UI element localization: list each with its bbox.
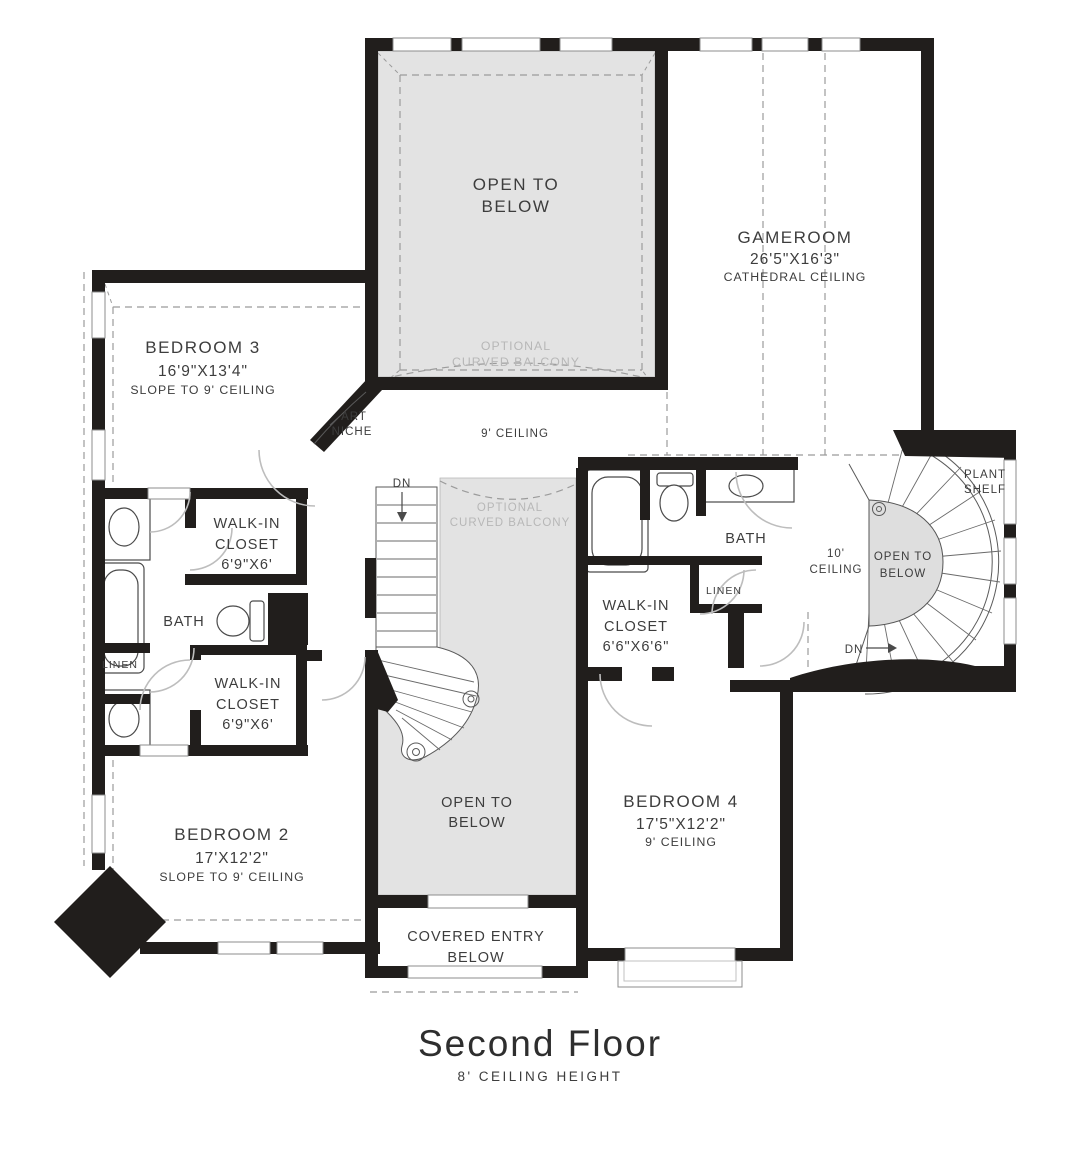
- ceiling-10-label: 10': [827, 548, 845, 560]
- floor-plan-page: OPEN TO BELOW OPTIONAL CURVED BALCONY GA…: [0, 0, 1080, 1152]
- wic-left-lower-label2: CLOSET: [216, 697, 280, 713]
- gameroom-name: GAMEROOM: [738, 228, 853, 247]
- optional-balcony-mid-label: OPTIONAL: [477, 502, 543, 514]
- open-below-top-label: OPEN TO: [473, 175, 559, 194]
- bedroom2-note: SLOPE TO 9' CEILING: [159, 870, 304, 884]
- plant-shelf-wall: [893, 430, 1016, 458]
- plant-shelf-label2: SHELF: [964, 484, 1006, 496]
- open-below-mid-label: OPEN TO: [441, 795, 513, 811]
- bedroom3-name: BEDROOM 3: [145, 338, 261, 357]
- ceiling-9-label: 9' CEILING: [481, 428, 549, 440]
- wic-right-label: WALK-IN: [603, 598, 670, 614]
- page-title: Second Floor: [418, 1023, 662, 1064]
- ceiling-10-label2: CEILING: [809, 564, 862, 576]
- covered-entry-label2: BELOW: [447, 950, 504, 966]
- door-wic-right: [600, 674, 652, 726]
- bay-corner-wall: [54, 866, 166, 978]
- bedroom3-dims: 16'9"X13'4": [158, 363, 248, 380]
- bedroom4-name: BEDROOM 4: [623, 792, 739, 811]
- linen-left-label: LINEN: [102, 659, 138, 671]
- toilet-left-tank: [250, 601, 264, 641]
- wic-left-lower-dims: 6'9"X6': [222, 717, 274, 733]
- sink-right: [729, 475, 763, 497]
- open-below-spiral-label2: BELOW: [880, 568, 927, 580]
- door-bedroom4: [760, 622, 804, 666]
- dn-spiral-label: DN: [845, 644, 864, 656]
- bedroom4-dims: 17'5"X12'2": [636, 816, 726, 833]
- wic-left-upper-dims: 6'9"X6': [221, 557, 273, 573]
- toilet-right-bowl: [660, 485, 688, 521]
- wic-left-lower-label: WALK-IN: [215, 676, 282, 692]
- optional-balcony-mid-label2: CURVED BALCONY: [450, 517, 571, 529]
- wic-left-upper-label: WALK-IN: [214, 516, 281, 532]
- bedroom2-name: BEDROOM 2: [174, 825, 290, 844]
- toilet-left-bowl: [217, 606, 249, 636]
- open-below-spiral-label: OPEN TO: [874, 551, 932, 563]
- art-niche-label2: NICHE: [332, 426, 373, 438]
- art-niche-label: ART: [341, 411, 367, 423]
- wic-right-label2: CLOSET: [604, 619, 668, 635]
- dn-main-label: DN: [393, 478, 412, 490]
- open-below-mid-label2: BELOW: [448, 815, 505, 831]
- open-below-top-label2: BELOW: [482, 197, 551, 216]
- wic-left-upper-label2: CLOSET: [215, 537, 279, 553]
- spiral-bottom-wall: [790, 659, 1016, 692]
- bath-right-label: BATH: [725, 531, 767, 547]
- optional-balcony-top-label2: CURVED BALCONY: [452, 355, 580, 369]
- gameroom-dims: 26'5"X16'3": [750, 251, 840, 268]
- bath-left-label: BATH: [163, 614, 205, 630]
- gameroom-note: CATHEDRAL CEILING: [724, 270, 867, 284]
- bedroom4-note: 9' CEILING: [645, 835, 717, 849]
- sink-left-upper: [109, 508, 139, 546]
- wic-right-dims: 6'6"X6'6": [603, 639, 670, 655]
- toilet-right-tank: [657, 473, 693, 486]
- optional-balcony-top-label: OPTIONAL: [481, 339, 551, 353]
- linen-right-label: LINEN: [706, 585, 742, 597]
- page-subtitle: 8' CEILING HEIGHT: [457, 1069, 622, 1084]
- plant-shelf-label: PLANT: [964, 469, 1006, 481]
- bedroom2-dims: 17'X12'2": [195, 850, 269, 867]
- bedroom3-note: SLOPE TO 9' CEILING: [130, 383, 275, 397]
- floor-plan-svg: OPEN TO BELOW OPTIONAL CURVED BALCONY GA…: [0, 0, 1080, 1152]
- door-linen-left: [150, 648, 194, 692]
- door-bedroom2: [322, 657, 365, 700]
- sink-left-lower: [109, 701, 139, 737]
- covered-entry-label: COVERED ENTRY: [407, 929, 545, 945]
